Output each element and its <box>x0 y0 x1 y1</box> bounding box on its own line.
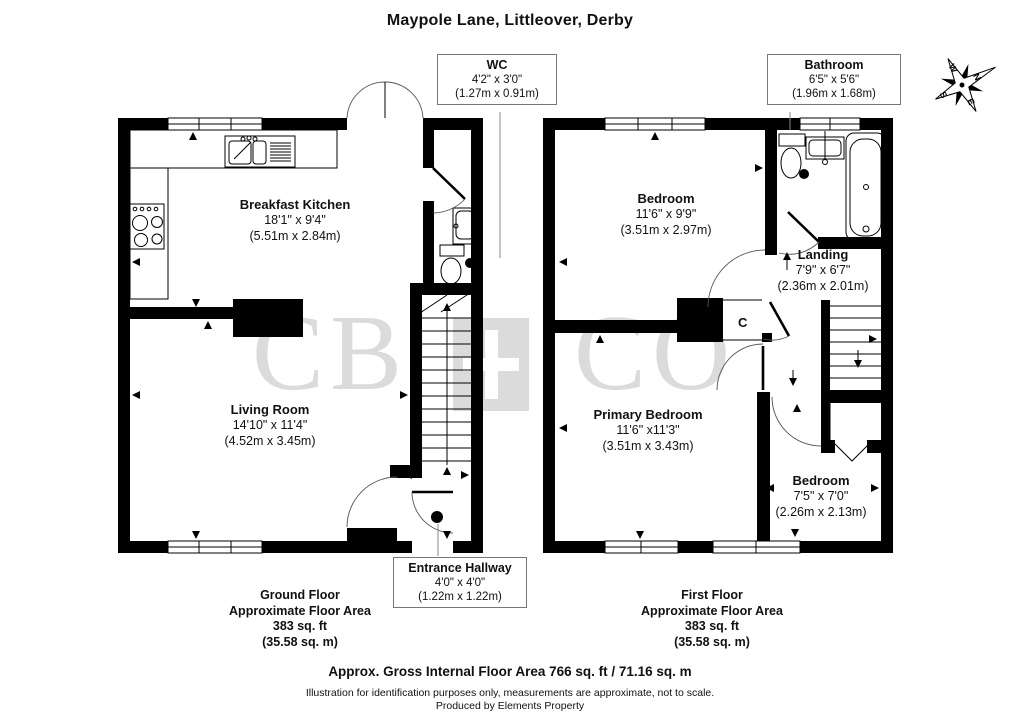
callout-wc-metric: (1.27m x 0.91m) <box>440 87 554 101</box>
front-door <box>412 492 453 533</box>
cupboard-door <box>770 302 789 336</box>
callout-entrance-name: Entrance Hallway <box>396 561 524 576</box>
bedroom-two-door <box>772 397 821 446</box>
primary-bedroom-door <box>717 344 763 390</box>
callout-wc-imperial: 4'2" x 3'0" <box>440 73 554 87</box>
callout-wc: WC 4'2" x 3'0" (1.27m x 0.91m) <box>437 54 557 105</box>
callout-bathroom-name: Bathroom <box>770 58 898 73</box>
room-metric: (2.26m x 2.13m) <box>775 505 866 521</box>
room-imperial: 14'10" x 11'4" <box>224 418 315 434</box>
room-name: Breakfast Kitchen <box>240 197 351 213</box>
callout-bathroom-metric: (1.96m x 1.68m) <box>770 87 898 101</box>
ground-stairs <box>420 291 473 465</box>
ground-walls <box>118 118 483 553</box>
wardrobe <box>830 403 869 461</box>
room-name: Living Room <box>224 402 315 418</box>
caption-line: (35.58 sq. m) <box>229 635 371 651</box>
room-metric: (4.52m x 3.45m) <box>224 434 315 450</box>
bathroom-toilet-icon <box>779 134 809 179</box>
caption-line: Ground Floor <box>229 588 371 604</box>
cupboard-label: C <box>738 315 748 330</box>
hob-icon <box>129 204 164 249</box>
room-metric: (3.51m x 2.97m) <box>620 223 711 239</box>
floorplan-canvas: C <box>0 0 1020 720</box>
callout-entrance-metric: (1.22m x 1.22m) <box>396 590 524 604</box>
room-metric: (2.36m x 2.01m) <box>777 279 868 295</box>
caption-line: 383 sq. ft <box>229 619 371 635</box>
room-label-bedroom-two: Bedroom 7'5" x 7'0" (2.26m x 2.13m) <box>775 473 866 520</box>
callout-entrance-hallway: Entrance Hallway 4'0" x 4'0" (1.22m x 1.… <box>393 557 527 608</box>
room-label-bedroom-one: Bedroom 11'6" x 9'9" (3.51m x 2.97m) <box>620 191 711 238</box>
room-name: Landing <box>777 247 868 263</box>
room-imperial: 18'1" x 9'4" <box>240 213 351 229</box>
floorplan-page: CB CO Maypole Lane, Littleover, Derby <box>0 0 1020 720</box>
callout-bathroom-imperial: 6'5" x 5'6" <box>770 73 898 87</box>
chimney-breast <box>233 299 303 337</box>
room-name: Bedroom <box>620 191 711 207</box>
compass-rose-icon: N S E W <box>920 40 1010 127</box>
caption-line: Approximate Floor Area <box>641 604 783 620</box>
kitchen-sink-icon <box>225 136 295 167</box>
room-metric: (5.51m x 2.84m) <box>240 229 351 245</box>
room-name: Bedroom <box>775 473 866 489</box>
wc-door <box>433 168 465 213</box>
cupboard: C <box>723 300 789 340</box>
room-metric: (3.51m x 3.43m) <box>593 439 702 455</box>
first-floor-caption: First Floor Approximate Floor Area 383 s… <box>641 588 783 650</box>
wc-toilet-icon <box>440 245 475 284</box>
callout-wc-name: WC <box>440 58 554 73</box>
bathtub-icon <box>846 133 885 240</box>
caption-line: (35.58 sq. m) <box>641 635 783 651</box>
living-room-door <box>347 477 397 527</box>
room-label-landing: Landing 7'9" x 6'7" (2.36m x 2.01m) <box>777 247 868 294</box>
callout-entrance-imperial: 4'0" x 4'0" <box>396 576 524 590</box>
room-imperial: 7'5" x 7'0" <box>775 489 866 505</box>
french-doors <box>347 82 423 118</box>
first-stairs <box>830 306 881 378</box>
entrance-dot <box>431 511 443 523</box>
room-name: Primary Bedroom <box>593 407 702 423</box>
ground-floor-plan <box>118 82 500 556</box>
bathroom-basin-icon <box>806 131 844 165</box>
room-imperial: 7'9" x 6'7" <box>777 263 868 279</box>
ground-floor-caption: Ground Floor Approximate Floor Area 383 … <box>229 588 371 650</box>
room-label-living-room: Living Room 14'10" x 11'4" (4.52m x 3.45… <box>224 402 315 449</box>
caption-line: Approximate Floor Area <box>229 604 371 620</box>
callout-bathroom: Bathroom 6'5" x 5'6" (1.96m x 1.68m) <box>767 54 901 105</box>
caption-line: 383 sq. ft <box>641 619 783 635</box>
room-imperial: 11'6" x 9'9" <box>620 207 711 223</box>
caption-line: First Floor <box>641 588 783 604</box>
room-imperial: 11'6" x11'3" <box>593 423 702 439</box>
room-label-primary-bedroom: Primary Bedroom 11'6" x11'3" (3.51m x 3.… <box>593 407 702 454</box>
room-label-breakfast-kitchen: Breakfast Kitchen 18'1" x 9'4" (5.51m x … <box>240 197 351 244</box>
